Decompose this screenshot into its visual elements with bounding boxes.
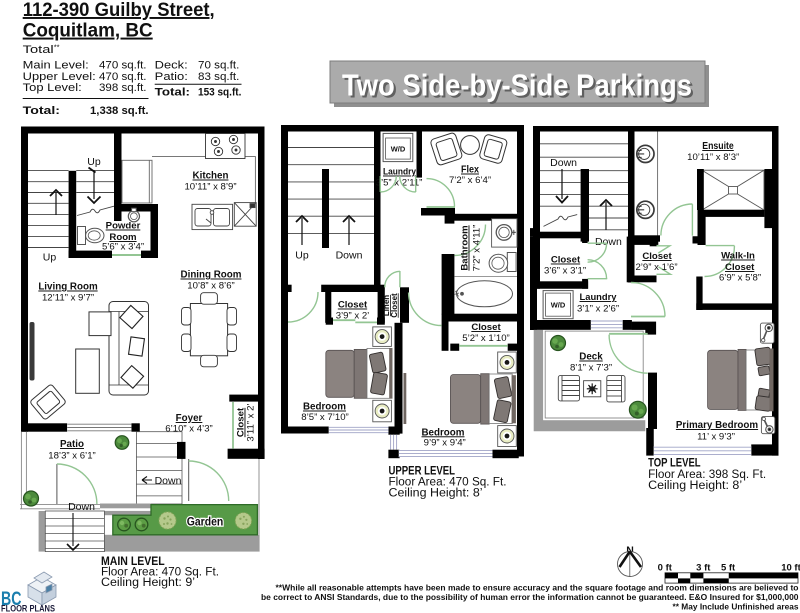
- svg-text:Upper Level:: Upper Level:: [23, 71, 96, 83]
- svg-text:Down: Down: [155, 475, 182, 487]
- svg-text:112-390 Guilby Street,: 112-390 Guilby Street,: [23, 0, 215, 21]
- svg-text:3 ft: 3 ft: [696, 563, 711, 574]
- svg-text:3’6” x 3’1”: 3’6” x 3’1”: [544, 265, 586, 276]
- svg-text:470 sq.ft.: 470 sq.ft.: [99, 60, 147, 72]
- svg-text:8’5” x 7’10”: 8’5” x 7’10”: [301, 412, 348, 423]
- svg-text:Down: Down: [595, 236, 622, 248]
- svg-text:Down: Down: [550, 157, 577, 169]
- svg-text:**While all reasonable attempt: **While all reasonable attempts have bee…: [276, 584, 799, 593]
- svg-text:Main Level:: Main Level:: [23, 60, 89, 72]
- svg-text:5’6” x 3’4”: 5’6” x 3’4”: [102, 241, 144, 252]
- svg-text:W/D: W/D: [551, 301, 566, 310]
- svg-text:Foyer: Foyer: [176, 413, 203, 424]
- svg-text:Total:: Total:: [23, 105, 60, 117]
- svg-text:5 ft: 5 ft: [721, 563, 736, 574]
- svg-text:7’2” x 6’4”: 7’2” x 6’4”: [449, 175, 491, 186]
- svg-text:Ceiling Height: 8’: Ceiling Height: 8’: [389, 488, 483, 500]
- svg-text:12’11” x 9’7”: 12’11” x 9’7”: [42, 293, 94, 304]
- svg-text:Up: Up: [43, 252, 57, 264]
- svg-text:3’11” x 2’: 3’11” x 2’: [246, 403, 257, 441]
- svg-text:Bathroom: Bathroom: [460, 225, 471, 270]
- svg-text:Total:: Total:: [155, 87, 190, 99]
- svg-text:Laundry: Laundry: [580, 292, 618, 303]
- svg-text:Top Level:: Top Level:: [23, 82, 82, 94]
- svg-text:11’ x 9’3”: 11’ x 9’3”: [697, 432, 735, 443]
- svg-text:10’8” x 8’6”: 10’8” x 8’6”: [187, 281, 234, 292]
- svg-text:be correct to ANSI Standards,: be correct to ANSI Standards, due to the…: [261, 593, 799, 602]
- svg-text:70 sq.ft.: 70 sq.ft.: [198, 60, 239, 72]
- svg-text:Powder: Powder: [106, 221, 141, 232]
- svg-text:Patio: Patio: [60, 439, 84, 450]
- svg-text:6’9” x 5’8”: 6’9” x 5’8”: [719, 272, 761, 283]
- svg-text:10 ft: 10 ft: [781, 563, 800, 574]
- svg-text:Ceiling Height: 8’: Ceiling Height: 8’: [648, 480, 742, 492]
- svg-text:Primary Bedroom: Primary Bedroom: [676, 420, 759, 431]
- svg-text:398 sq.ft.: 398 sq.ft.: [99, 82, 147, 94]
- svg-text:Dining Room: Dining Room: [181, 270, 242, 281]
- svg-text:W/D: W/D: [391, 145, 406, 154]
- svg-text:470 sq.ft.: 470 sq.ft.: [99, 71, 147, 83]
- svg-text:Floor Area: 470 Sq. Ft.: Floor Area: 470 Sq. Ft.: [389, 477, 507, 489]
- svg-text:Deck: Deck: [579, 352, 603, 363]
- svg-text:8’1” x 7’3”: 8’1” x 7’3”: [570, 362, 612, 373]
- svg-text:Living Room: Living Room: [38, 282, 98, 293]
- svg-text:Kitchen: Kitchen: [193, 171, 229, 182]
- svg-text:Coquitlam, BC: Coquitlam, BC: [23, 20, 153, 42]
- svg-text:10’11” x 8’9”: 10’11” x 8’9”: [184, 182, 236, 193]
- svg-text:2’9” x 1’6”: 2’9” x 1’6”: [635, 262, 677, 273]
- svg-text:Two Side-by-Side Parkings: Two Side-by-Side Parkings: [342, 69, 692, 103]
- svg-text:Ensuite: Ensuite: [702, 141, 734, 152]
- svg-text:Floor Area: 398 Sq. Ft.: Floor Area: 398 Sq. Ft.: [648, 469, 766, 481]
- svg-text:Closet: Closet: [642, 251, 672, 262]
- svg-text:5’2” x 1’10”: 5’2” x 1’10”: [462, 333, 509, 344]
- svg-text:Closet: Closet: [551, 255, 581, 266]
- svg-text:7’2” x 4’11”: 7’2” x 4’11”: [472, 225, 483, 272]
- svg-text:18’3” x 6’1”: 18’3” x 6’1”: [48, 451, 95, 462]
- svg-text:3’9” x 2’: 3’9” x 2’: [336, 311, 370, 322]
- svg-text:Down: Down: [336, 250, 363, 262]
- svg-text:Closet: Closet: [338, 300, 368, 311]
- svg-text:Deck:: Deck:: [155, 60, 188, 72]
- svg-text:0 ft: 0 ft: [658, 563, 673, 574]
- svg-text:FLOOR PLANS: FLOOR PLANS: [1, 604, 55, 613]
- svg-text:Patio:: Patio:: [155, 71, 188, 83]
- svg-text:TOP LEVEL: TOP LEVEL: [648, 456, 701, 470]
- svg-text:Ceiling Height: 9’: Ceiling Height: 9’: [101, 577, 195, 589]
- svg-text:153 sq.ft.: 153 sq.ft.: [198, 87, 241, 99]
- svg-text:Garden: Garden: [187, 517, 224, 529]
- svg-text:Walk-In: Walk-In: [721, 251, 755, 262]
- svg-text:Up: Up: [87, 156, 101, 168]
- svg-text:Laundry: Laundry: [383, 167, 417, 178]
- svg-text:Closet: Closet: [471, 322, 501, 333]
- svg-text:9’9” x 9’4”: 9’9” x 9’4”: [424, 438, 466, 449]
- svg-text:Up: Up: [295, 250, 309, 262]
- svg-text:1,338 sq.ft.: 1,338 sq.ft.: [90, 105, 149, 117]
- svg-text:Closet: Closet: [390, 293, 399, 318]
- svg-text:** May Include Unfinished area: ** May Include Unfinished areas: [673, 603, 800, 612]
- svg-text:3’1” x 2’6”: 3’1” x 2’6”: [577, 304, 619, 315]
- svg-text:83 sq.ft.: 83 sq.ft.: [198, 71, 239, 83]
- svg-text:UPPER LEVEL: UPPER LEVEL: [389, 463, 456, 477]
- svg-text:10’11” x 8’3”: 10’11” x 8’3”: [687, 152, 739, 163]
